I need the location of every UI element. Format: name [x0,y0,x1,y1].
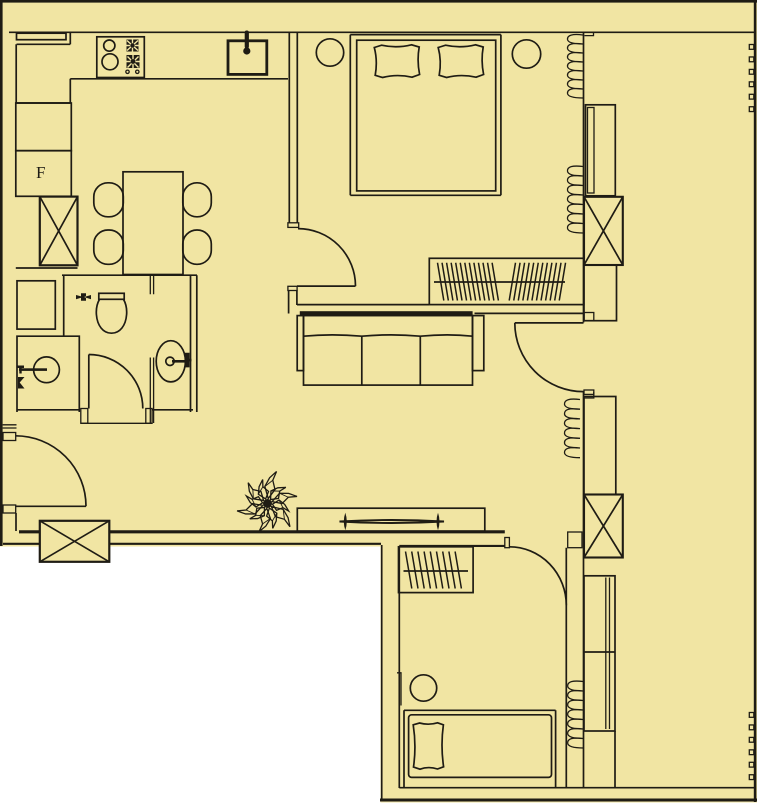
svg-text:F: F [36,163,45,182]
